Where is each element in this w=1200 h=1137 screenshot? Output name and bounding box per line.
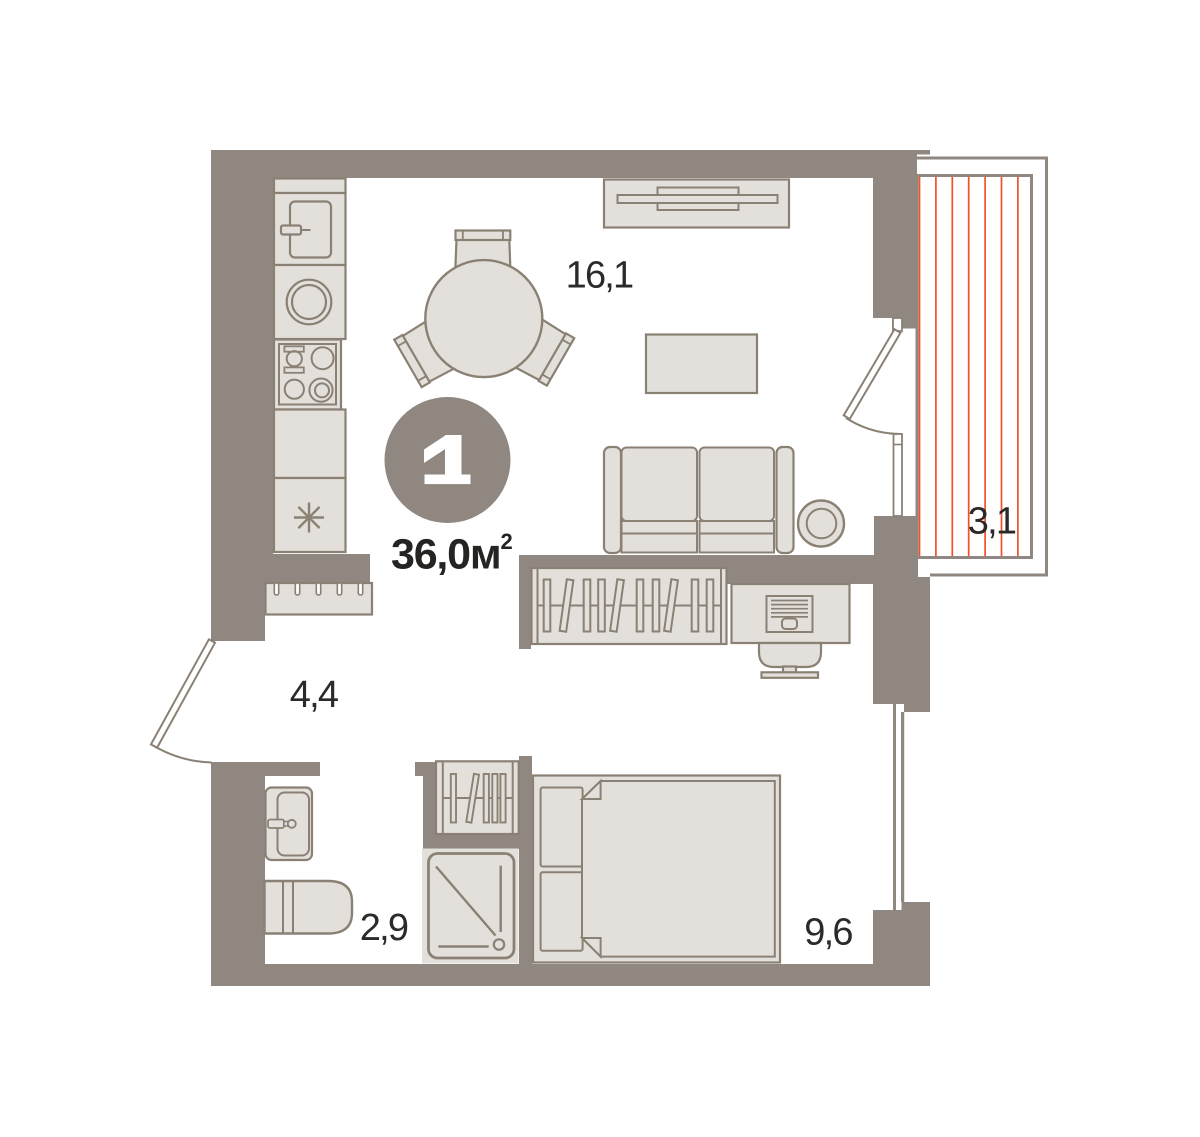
svg-text:2,9: 2,9 [360,907,408,949]
svg-text:4,4: 4,4 [290,674,339,716]
svg-text:3,1: 3,1 [968,501,1016,543]
svg-text:9,6: 9,6 [804,912,852,954]
svg-text:36,0м2: 36,0м2 [391,529,513,579]
svg-text:16,1: 16,1 [566,255,633,297]
